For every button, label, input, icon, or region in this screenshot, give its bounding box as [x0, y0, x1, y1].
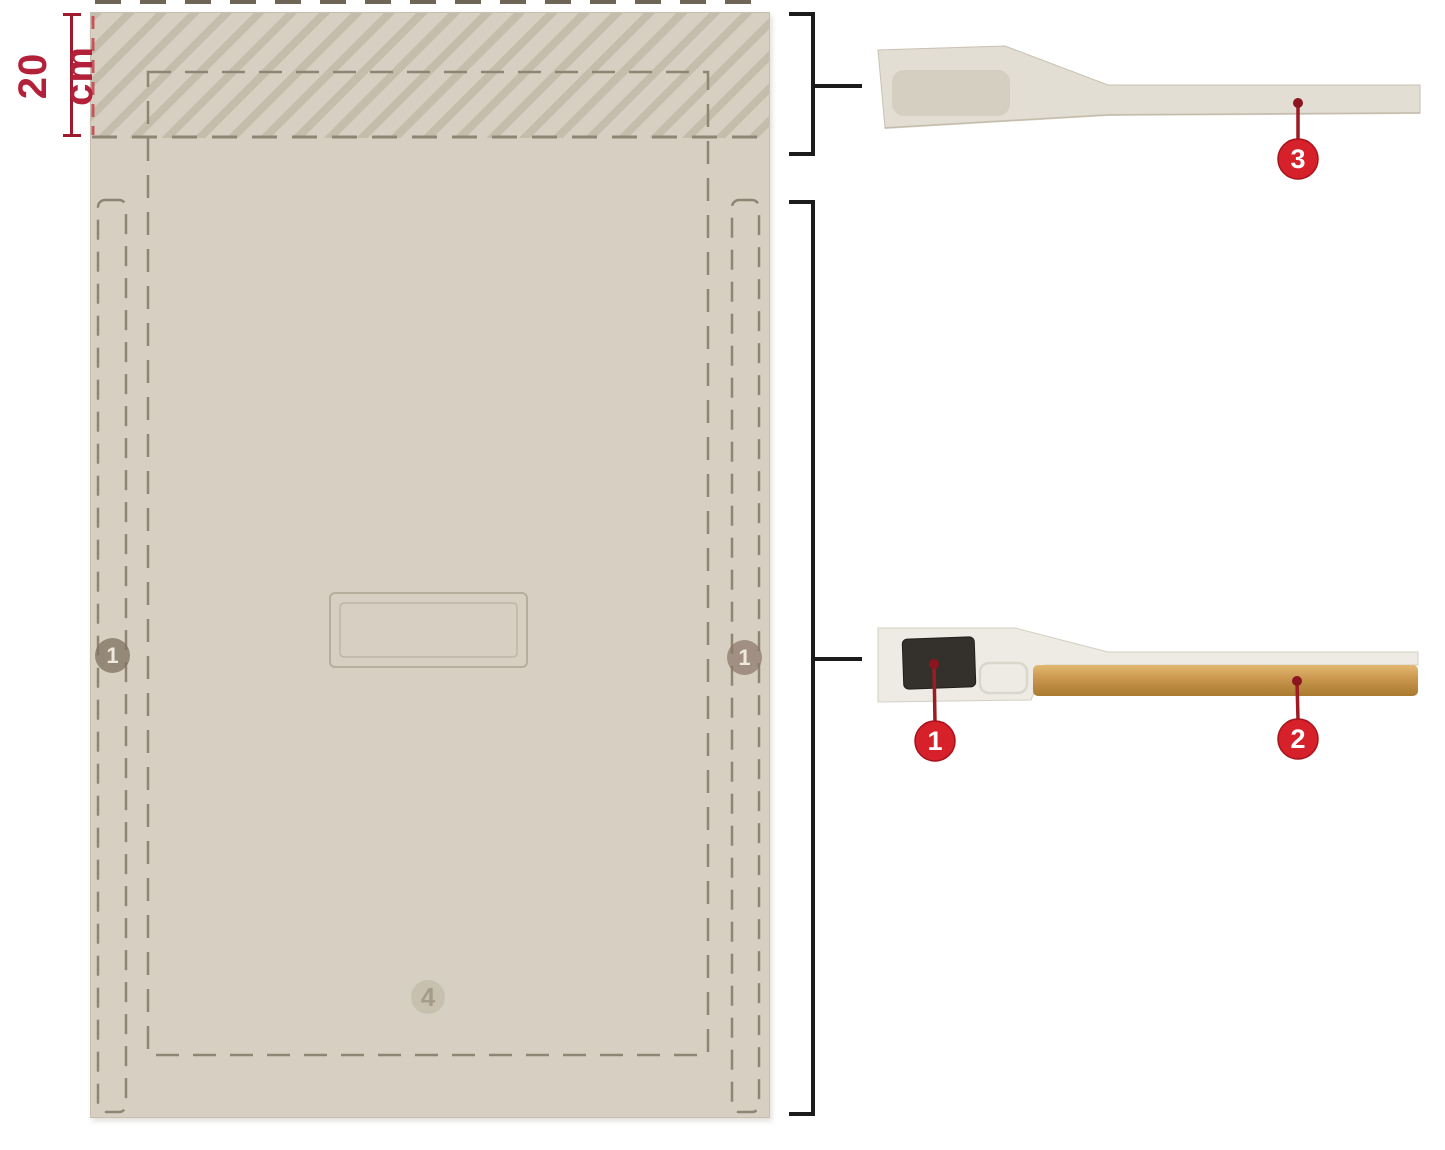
panel-plan-view [90, 12, 770, 1118]
mid-detail-black-insert [902, 637, 976, 689]
label-window-outer [330, 593, 527, 667]
dimension-cap-top [63, 13, 81, 16]
dimension-label: 20 cm [10, 20, 56, 132]
marker-badge-channel-left: 1 [95, 638, 130, 673]
inner-dashed-outline [148, 72, 708, 1055]
callout-2-number: 2 [1290, 724, 1305, 754]
label-window-inner [340, 603, 517, 657]
detail-mid-cross-section [865, 615, 1430, 715]
top-detail-inner-shadow [892, 70, 1010, 116]
bracket-top-section [789, 14, 862, 154]
callout-2-badge [1278, 719, 1318, 759]
mid-detail-copper-strip [1033, 665, 1418, 696]
panel-dashed-lines [90, 12, 770, 1118]
callout-1-badge [915, 721, 955, 761]
marker-badge-four: 4 [407, 976, 449, 1018]
marker-badge-channel-right: 1 [727, 640, 762, 675]
detail-top-cross-section [865, 28, 1430, 148]
callout-3-number: 3 [1290, 144, 1305, 174]
diagram-stage: 1 1 4 20 cm [0, 0, 1445, 1150]
top-clipped-dashed-line [95, 0, 767, 4]
callout-1-number: 1 [927, 726, 942, 756]
dimension-cap-bottom [63, 134, 81, 137]
bracket-main-section [789, 202, 862, 1114]
